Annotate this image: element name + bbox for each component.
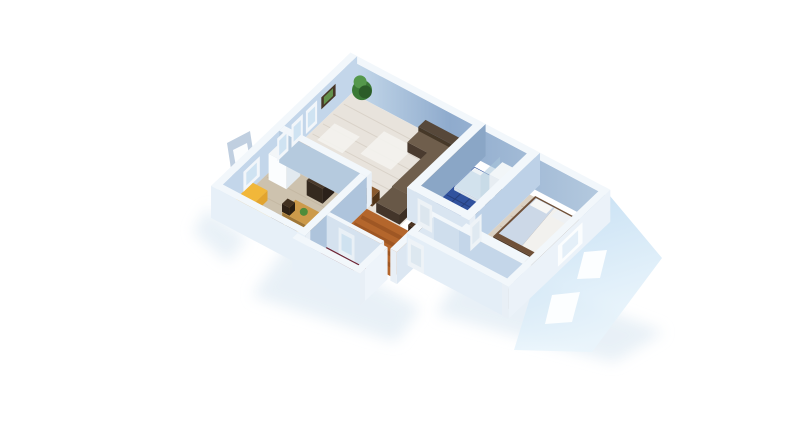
- plant-table: [300, 208, 308, 216]
- wall-entry-south-envelope-cap: [360, 269, 365, 306]
- wall-hall-east-cap: [390, 249, 397, 285]
- scene-root: [193, 53, 664, 362]
- floorplan-render-canvas: [0, 0, 800, 430]
- wall-east-envelope-cap: [502, 283, 509, 319]
- floorplan-svg: [0, 0, 800, 430]
- wall-living-south-cap: [367, 172, 372, 209]
- plant-living-leaf-2: [359, 85, 372, 98]
